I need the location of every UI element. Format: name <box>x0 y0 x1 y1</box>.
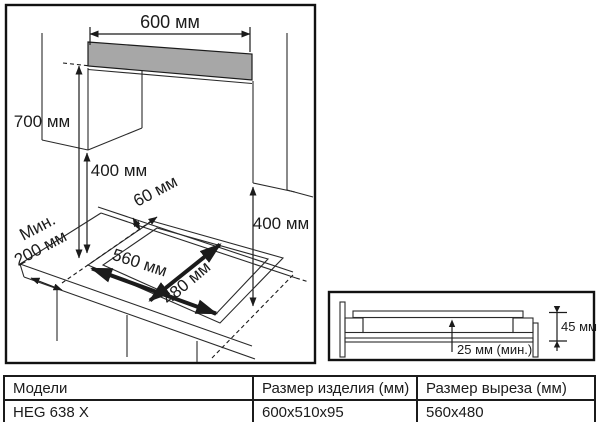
worktop-right-section <box>513 318 533 333</box>
dim-back-offset: 60 мм <box>130 172 180 230</box>
col-header-product-size: Размер изделия (мм) <box>253 376 417 400</box>
col-header-cutout-size: Размер выреза (мм) <box>417 376 595 400</box>
dim-cutout-width-label: 560 мм <box>110 245 170 281</box>
dim-right-cabinet-label: 400 мм <box>253 214 309 233</box>
dim-hood-height-label: 700 мм <box>14 112 70 131</box>
spec-table-header-row: Модели Размер изделия (мм) Размер выреза… <box>4 376 595 400</box>
right-side-panel <box>533 323 538 357</box>
dim-bottom-clearance-label: 25 мм (мин.) <box>457 342 532 357</box>
diagram-canvas: 600 мм 700 мм 400 мм 400 мм <box>0 0 600 422</box>
left-side-panel <box>340 302 345 357</box>
dim-installed-depth-label: 45 мм <box>561 319 597 334</box>
cell-cutout-size: 560x480 <box>417 400 595 422</box>
inset-cross-section: 45 мм 25 мм (мин.) <box>329 292 597 360</box>
col-header-models: Модели <box>4 376 253 400</box>
spec-table-wrap: Модели Размер изделия (мм) Размер выреза… <box>3 375 596 422</box>
hob-top-panel <box>353 311 523 318</box>
cell-model-name: HEG 638 X <box>4 400 253 422</box>
dim-right-cabinet: 400 мм <box>253 187 309 306</box>
main-diagram: 600 мм 700 мм 400 мм 400 мм <box>6 5 315 363</box>
installation-diagram-page: 600 мм 700 мм 400 мм 400 мм <box>0 0 600 422</box>
spec-table: Модели Размер изделия (мм) Размер выреза… <box>3 375 596 422</box>
hob-body <box>363 318 513 333</box>
worktop-left-section <box>345 318 363 333</box>
dim-left-cabinet-label: 400 мм <box>91 161 147 180</box>
cell-product-size: 600x510x95 <box>253 400 417 422</box>
dim-hood-width-label: 600 мм <box>140 12 200 32</box>
hood-bar <box>88 42 252 84</box>
dim-installed-depth: 45 мм <box>549 306 597 351</box>
spec-table-data-row: HEG 638 X 600x510x95 560x480 <box>4 400 595 422</box>
